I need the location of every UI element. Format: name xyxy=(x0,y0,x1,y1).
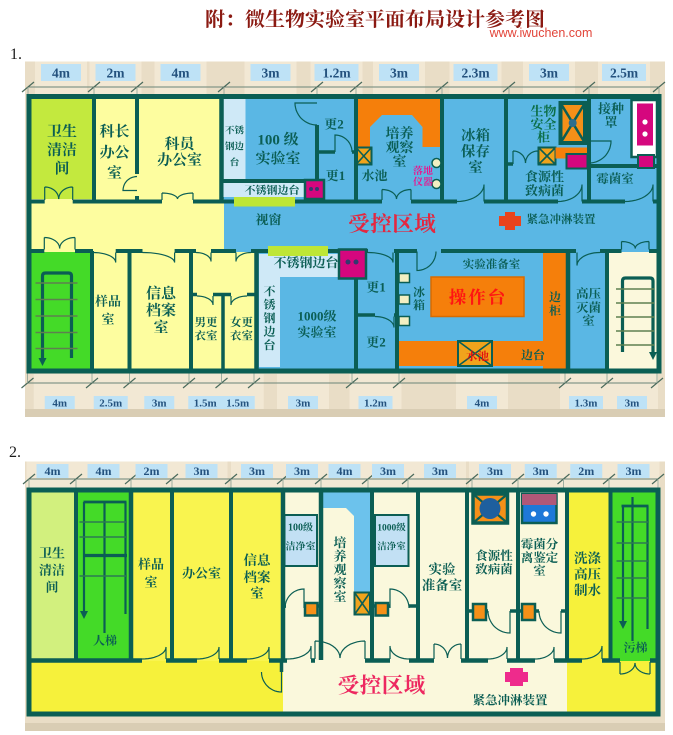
svg-text:3m: 3m xyxy=(390,66,409,81)
svg-text:4m: 4m xyxy=(96,464,112,478)
svg-text:3m: 3m xyxy=(487,464,503,478)
svg-text:2.5m: 2.5m xyxy=(610,66,639,81)
svg-text:1.2m: 1.2m xyxy=(364,397,387,409)
svg-text:2.: 2. xyxy=(9,444,21,461)
svg-text:4m: 4m xyxy=(172,66,191,81)
svg-text:3m: 3m xyxy=(152,397,167,409)
svg-text:1.2m: 1.2m xyxy=(322,66,351,81)
svg-text:3m: 3m xyxy=(540,66,559,81)
svg-text:2.3m: 2.3m xyxy=(461,66,490,81)
svg-text:1.3m: 1.3m xyxy=(575,397,598,409)
svg-text:4m: 4m xyxy=(475,397,490,409)
svg-text:4m: 4m xyxy=(52,397,67,409)
svg-text:100: 100 xyxy=(288,523,303,534)
svg-text:2m: 2m xyxy=(578,464,594,478)
svg-text:2m: 2m xyxy=(144,464,160,478)
svg-text:3m: 3m xyxy=(294,464,310,478)
svg-text:3m: 3m xyxy=(432,464,448,478)
svg-text:www.iwuchen.com: www.iwuchen.com xyxy=(489,26,593,40)
svg-text:1: 1 xyxy=(339,168,346,183)
svg-text:3m: 3m xyxy=(249,464,265,478)
svg-text:3m: 3m xyxy=(626,464,642,478)
svg-text:1.5m: 1.5m xyxy=(226,397,249,409)
svg-text:3m: 3m xyxy=(194,464,210,478)
svg-text:4m: 4m xyxy=(337,464,353,478)
svg-text:3m: 3m xyxy=(296,397,311,409)
svg-text:2: 2 xyxy=(379,335,386,350)
svg-text:1.5m: 1.5m xyxy=(194,397,217,409)
svg-text:3m: 3m xyxy=(380,464,396,478)
svg-text:4m: 4m xyxy=(45,464,61,478)
svg-text:1000: 1000 xyxy=(298,309,324,324)
svg-text:1000: 1000 xyxy=(377,523,396,533)
svg-text:3m: 3m xyxy=(625,397,640,409)
svg-text:1: 1 xyxy=(379,280,386,295)
svg-text:2.5m: 2.5m xyxy=(99,397,122,409)
svg-text:3m: 3m xyxy=(533,464,549,478)
svg-text:4m: 4m xyxy=(52,66,71,81)
svg-text:3m: 3m xyxy=(262,66,281,81)
svg-text:1.: 1. xyxy=(10,46,22,63)
svg-text:2m: 2m xyxy=(107,66,126,81)
svg-text:100: 100 xyxy=(257,132,280,148)
svg-text:2: 2 xyxy=(337,117,344,132)
